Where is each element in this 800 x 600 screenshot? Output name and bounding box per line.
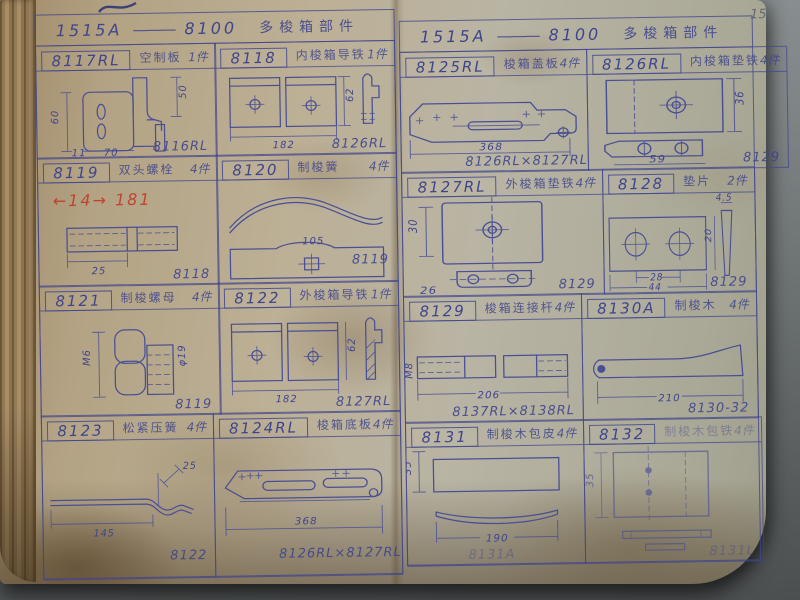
- machine-model: 1515A: [56, 20, 123, 40]
- part-cell-8121: 8121 制梭螺母 4件 M6 φ19: [39, 283, 221, 417]
- part-qty: 4件: [557, 424, 577, 441]
- machine-model: 1515A: [420, 26, 487, 46]
- part-cell-8127RL: 8127RL 外梭箱垫铁 4件 30: [401, 169, 605, 297]
- part-number: 8121: [45, 290, 111, 311]
- part-name: 松紧压簧: [122, 418, 178, 436]
- drawing-ref: 8126RL×8127RL: [465, 153, 588, 170]
- part-qty: 1件: [188, 48, 208, 65]
- svg-text:35: 35: [585, 473, 596, 488]
- drawing-ref: 8118: [173, 267, 210, 283]
- table-row: 8117RL 空制板 1件 50: [36, 41, 396, 159]
- part-name: 制梭螺母: [120, 288, 176, 306]
- part-number: 8127RL: [407, 176, 496, 197]
- svg-text:4.5: 4.5: [715, 193, 732, 205]
- part-number: 8120: [222, 159, 288, 180]
- svg-text:368: 368: [295, 517, 318, 528]
- svg-text:182: 182: [273, 140, 295, 151]
- part-name: 空制板: [139, 48, 181, 66]
- part-qty: 4件: [373, 415, 393, 432]
- photo-of-parts-catalog: { "meta": { "page_number": "15" }, "colo…: [0, 0, 800, 600]
- table-row: 8127RL 外梭箱垫铁 4件 30: [402, 167, 756, 297]
- svg-text:62: 62: [345, 88, 356, 103]
- part-cell-8117RL: 8117RL 空制板 1件 50: [35, 43, 217, 159]
- svg-text:210: 210: [658, 394, 680, 405]
- svg-text:25: 25: [92, 266, 107, 277]
- drawing-ref: 8129: [743, 150, 780, 166]
- part-number: 8132: [589, 424, 655, 445]
- catalog-sheet: 15 1515A ——— 8100 多梭箱部件 8117RL 空制板 1件: [32, 1, 775, 580]
- svg-text:206: 206: [478, 391, 501, 402]
- part-qty: 4件: [734, 421, 754, 438]
- drawing-ref: 8131A: [468, 547, 515, 563]
- part-name: 制梭木: [674, 296, 716, 314]
- svg-text:20: 20: [703, 228, 714, 243]
- drawing-ref: 8130-32: [688, 400, 750, 416]
- svg-text:190: 190: [486, 534, 509, 545]
- part-qty: 4件: [729, 295, 749, 312]
- part-cell-8119: 8119 双头螺栓 4件 ←14→ 181 25 8118: [37, 155, 219, 287]
- drawing-ref: 8137RL×8138RL: [452, 403, 575, 420]
- part-number: 8131: [411, 427, 477, 448]
- parts-table-left: 1515A ——— 8100 多梭箱部件 8117RL 空制板 1件: [34, 9, 403, 580]
- drawing-ref: 8131L: [709, 543, 755, 559]
- part-cell-8123: 8123 松紧压簧 4件 25 145 8122: [41, 413, 217, 580]
- part-qty: 4件: [190, 160, 210, 177]
- part-qty: 4件: [369, 157, 389, 174]
- table-row: 8123 松紧压簧 4件 25 145 8122: [42, 411, 403, 580]
- part-qty: 4件: [187, 418, 207, 435]
- header-dash: ———: [132, 19, 174, 39]
- svg-text:368: 368: [480, 142, 504, 154]
- svg-text:25: 25: [183, 461, 197, 472]
- part-name: 外梭箱垫铁: [505, 174, 575, 192]
- drawing-ref: 8126RL×8127RL: [279, 545, 402, 562]
- table-row: 8121 制梭螺母 4件 M6 φ19: [40, 281, 400, 417]
- part-cell-8132: 8132 制梭木包铁 4件 35: [583, 417, 764, 564]
- part-cell-8120: 8120 制梭簧 4件 105 8119: [216, 152, 398, 284]
- part-name: 垫片: [683, 172, 711, 189]
- svg-text:182: 182: [276, 394, 298, 405]
- svg-text:M8: M8: [405, 362, 416, 379]
- drawing-ref: 8127RL: [336, 394, 392, 410]
- svg-text:φ19: φ19: [177, 345, 188, 367]
- part-qty: 2件: [727, 171, 747, 188]
- group-number: 8100: [548, 24, 601, 44]
- svg-text:35: 35: [407, 460, 415, 475]
- part-qty: 4件: [760, 51, 780, 68]
- table-row: 8131 制梭木包皮 4件 35 190 8131A: [406, 417, 760, 566]
- drawing-ref: 8119: [352, 252, 389, 268]
- part-name: 梭箱连接杆: [485, 298, 555, 316]
- svg-text:62: 62: [347, 338, 358, 353]
- drawing-ref: 8129: [710, 274, 747, 290]
- svg-text:50: 50: [178, 85, 189, 100]
- part-cell-8126RL: 8126RL 内梭箱垫铁 4件 36: [586, 46, 789, 170]
- part-number: 8125RL: [406, 56, 495, 77]
- svg-text:36: 36: [732, 91, 746, 106]
- part-cell-8118: 8118 内梭箱导铁 1件 182 62: [214, 40, 396, 156]
- part-name: 内梭箱导铁: [296, 45, 366, 63]
- part-qty: 4件: [555, 298, 575, 315]
- parts-table-right: 1515A ——— 8100 多梭箱部件 8125RL 梭箱盖板 4件: [399, 15, 762, 565]
- drawing-ref: 8122: [170, 548, 207, 564]
- part-number: 8119: [43, 162, 109, 183]
- header-dash: ———: [496, 25, 538, 45]
- table-row: 8129 梭箱连接杆 4件 206 M8: [404, 291, 758, 423]
- part-name: 外梭箱导铁: [299, 285, 369, 303]
- part-qty: 4件: [192, 288, 212, 305]
- catalog-book-page: 15 1515A ——— 8100 多梭箱部件 8117RL 空制板 1件: [0, 0, 766, 584]
- part-qty: 4件: [560, 54, 580, 71]
- drawing-ref: 8126RL: [332, 136, 388, 152]
- part-qty: 1件: [367, 45, 387, 62]
- part-number: 8130A: [587, 298, 666, 319]
- part-cell-8128: 8128 垫片 2件 28 44: [602, 167, 757, 295]
- part-name: 内梭箱垫铁: [690, 51, 760, 69]
- part-name: 双头螺栓: [118, 160, 174, 178]
- part-cell-8125RL: 8125RL 梭箱盖板 4件 368: [399, 49, 588, 173]
- part-number: 8123: [47, 420, 113, 441]
- part-name: 梭箱盖板: [504, 54, 560, 72]
- part-cell-8122: 8122 外梭箱导铁 1件 182 62: [218, 280, 400, 414]
- group-title: 多梭箱部件: [259, 16, 359, 38]
- part-number: 8124RL: [219, 417, 308, 438]
- group-number: 8100: [184, 18, 237, 38]
- part-name: 制梭木包铁: [664, 422, 734, 440]
- part-cell-8131: 8131 制梭木包皮 4件 35 190 8131A: [405, 419, 586, 566]
- svg-text:145: 145: [94, 528, 115, 539]
- table-row: 8119 双头螺栓 4件 ←14→ 181 25 8118: [38, 153, 398, 287]
- part-number: 8129: [409, 301, 475, 322]
- table-row: 8125RL 梭箱盖板 4件 368: [400, 47, 754, 173]
- svg-text:60: 60: [50, 110, 61, 125]
- svg-text:M6: M6: [82, 349, 93, 366]
- part-name: 梭箱底板: [317, 415, 373, 433]
- part-cell-8129: 8129 梭箱连接杆 4件 206 M8: [403, 293, 584, 423]
- part-number: 8118: [220, 48, 286, 69]
- part-cell-8124RL: 8124RL 梭箱底板 4件 368: [213, 410, 403, 577]
- part-number: 8117RL: [41, 50, 130, 71]
- svg-text:59: 59: [649, 153, 666, 165]
- part-number: 8122: [224, 287, 290, 308]
- part-number: 8126RL: [592, 53, 681, 74]
- part-cell-8130A: 8130A 制梭木 4件 210: [581, 291, 759, 421]
- part-drawing-curved-spring: 105: [217, 178, 397, 283]
- group-title: 多梭箱部件: [623, 22, 723, 44]
- part-name: 制梭簧: [297, 158, 339, 176]
- part-name: 制梭木包皮: [487, 424, 557, 442]
- drawing-ref: 8129: [559, 276, 596, 292]
- drawing-ref: 8119: [175, 397, 212, 413]
- part-qty: 1件: [371, 285, 391, 302]
- part-qty: 4件: [575, 174, 595, 191]
- drawing-ref: 8116RL: [153, 139, 209, 155]
- svg-text:105: 105: [303, 236, 325, 247]
- part-number: 8128: [608, 173, 674, 194]
- book-page-edges: [0, 0, 36, 582]
- svg-text:30: 30: [406, 219, 420, 234]
